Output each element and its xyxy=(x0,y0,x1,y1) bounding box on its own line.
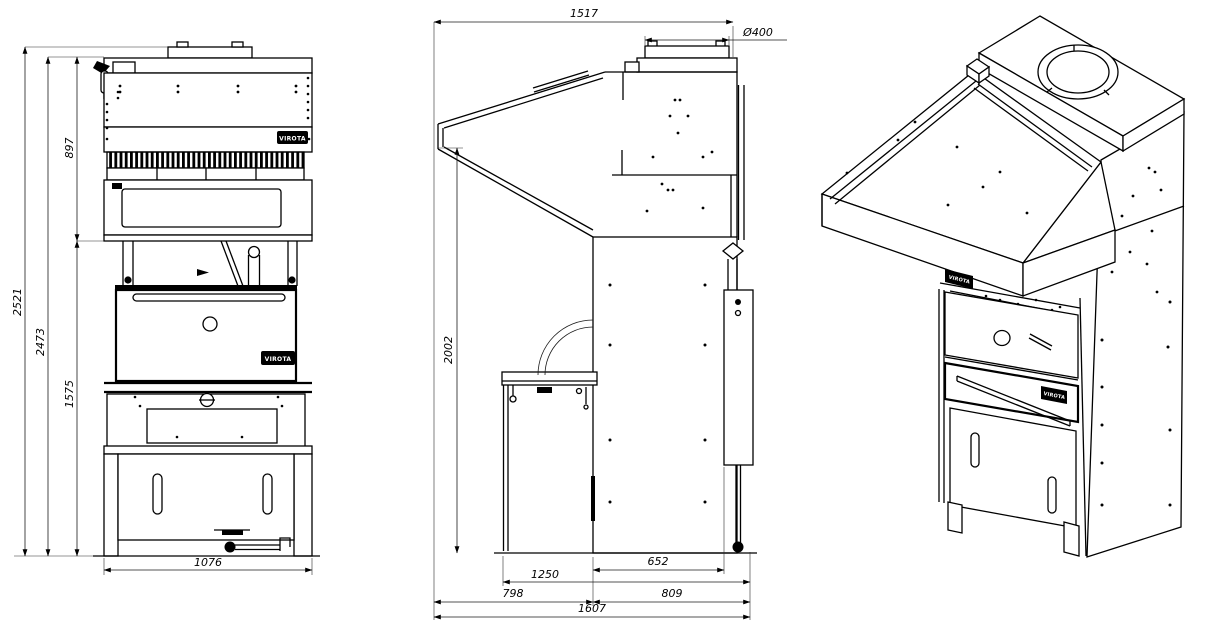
dim-rear-depth: 809 xyxy=(662,587,683,600)
side-flue-collar xyxy=(637,41,737,72)
iso-door-viewport xyxy=(994,331,1010,346)
flue-ring xyxy=(1038,45,1118,99)
front-drawer xyxy=(104,383,312,448)
dim-overall-height: 2521 xyxy=(11,288,24,316)
dim-hood-height: 897 xyxy=(63,138,76,159)
brand-badge-hood: VIROTA xyxy=(277,131,308,144)
front-stand xyxy=(104,235,312,290)
side-shelf xyxy=(502,320,597,551)
front-oven-door: VIROTA xyxy=(116,290,296,381)
door-handle-bar[interactable] xyxy=(133,294,285,301)
base-door-handle-left[interactable] xyxy=(153,474,162,514)
door-hinge-mark xyxy=(591,476,595,521)
isometric-view: VIROTA xyxy=(822,16,1184,557)
front-view: VIROTA xyxy=(11,42,320,575)
dim-mid-depth: 1250 xyxy=(531,568,559,581)
dim-base-height: 1575 xyxy=(63,380,76,408)
stand-pipe xyxy=(249,247,260,258)
door-swing-arc xyxy=(538,320,593,375)
dim-width: 1076 xyxy=(194,556,222,569)
side-upper-box xyxy=(612,72,737,240)
dim-body-depth: 652 xyxy=(648,555,669,568)
dim-flue-diameter: Ø400 xyxy=(742,26,773,39)
iso-front-face: VIROTA xyxy=(939,289,1079,556)
dim-frame-height: 2473 xyxy=(34,328,47,356)
iso-leg-right xyxy=(1064,522,1079,556)
side-box-rivets xyxy=(646,99,714,213)
front-filter-band xyxy=(107,152,304,180)
side-body xyxy=(591,237,737,553)
front-chimney-stub xyxy=(168,42,252,58)
iso-base-handle-left[interactable] xyxy=(971,433,979,467)
iso-oven-door xyxy=(945,292,1078,378)
front-upper-panel xyxy=(104,180,312,235)
dim-height: 2002 xyxy=(442,336,455,364)
iso-base-cabinet xyxy=(950,408,1076,528)
front-hood: VIROTA xyxy=(93,58,312,152)
side-hood xyxy=(438,62,639,237)
dim-front-overhang: 798 xyxy=(503,587,524,600)
brand-badge-door: VIROTA xyxy=(261,351,295,365)
front-base-cabinet xyxy=(93,446,320,556)
iso-leg-left xyxy=(948,502,962,533)
brand-badge-hood-label: VIROTA xyxy=(279,136,306,143)
iso-base-handle-right[interactable] xyxy=(1048,477,1056,513)
oven-technical-drawing: VIROTA xyxy=(0,0,1208,637)
brand-badge-door-label: VIROTA xyxy=(265,356,292,363)
side-view: 1517 Ø400 2002 652 1250 798 809 1607 xyxy=(434,7,787,620)
base-door-handle-right[interactable] xyxy=(263,474,272,514)
technical-drawing-page: VIROTA xyxy=(0,0,1208,637)
dim-top-width: 1517 xyxy=(570,7,598,20)
dim-overall-depth: 1607 xyxy=(578,602,606,615)
door-viewport xyxy=(203,317,217,331)
arrow-mark xyxy=(197,269,209,276)
